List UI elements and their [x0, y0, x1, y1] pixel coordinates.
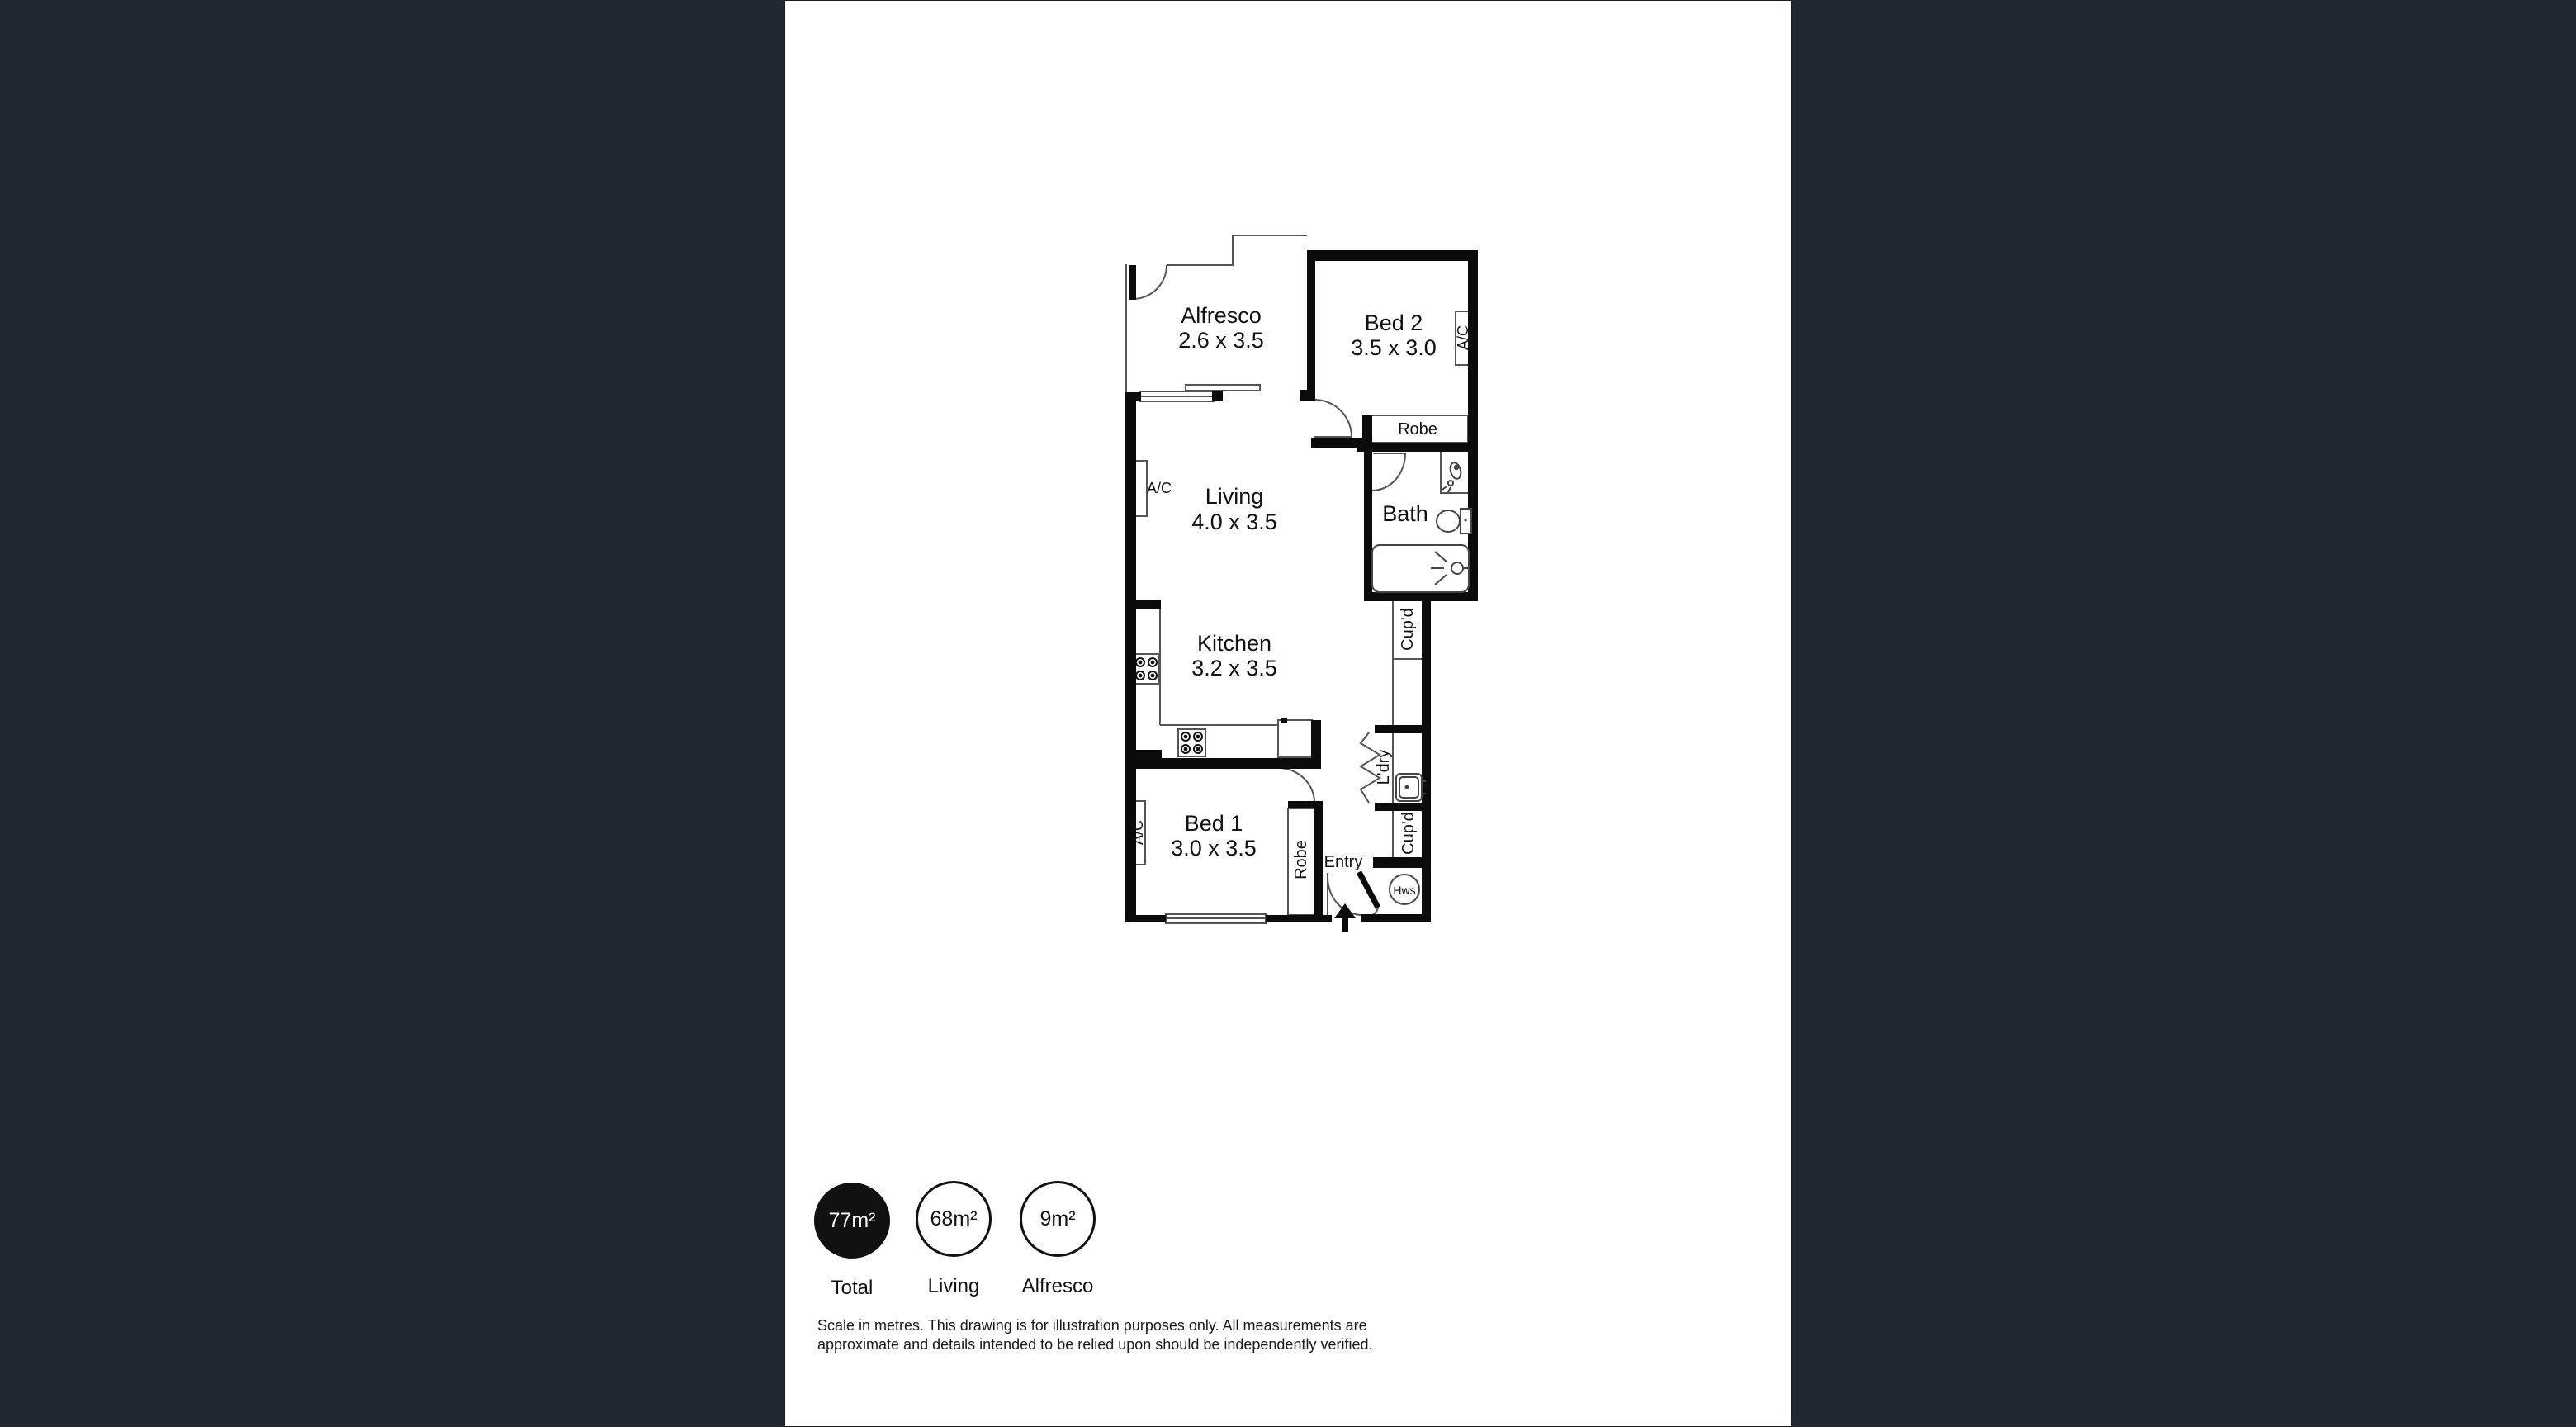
wall-segment — [1125, 758, 1321, 769]
room-label-living: Living — [1205, 484, 1264, 509]
shower-screen — [1441, 451, 1468, 493]
wall-segment — [1281, 718, 1287, 723]
entry-arrow-icon — [1334, 903, 1356, 932]
wall-segment — [1375, 725, 1426, 733]
wall-segment — [1422, 592, 1431, 922]
bath-door-arc — [1372, 453, 1405, 491]
stat-circle-living: 68m² Living — [904, 1181, 1003, 1298]
bed2-ac-label: A/C — [1455, 325, 1471, 350]
wall-segment — [1300, 390, 1315, 401]
room-label-bed2: Bed 2 — [1365, 311, 1423, 335]
cupd-upper-label: Cup'd — [1399, 608, 1417, 651]
stat-caption-alfresco: Alfresco — [1008, 1275, 1107, 1298]
bed1-robe-label: Robe — [1292, 840, 1310, 879]
stat-value-alfresco: 9m² — [1020, 1181, 1096, 1257]
wall-segment — [1307, 250, 1478, 261]
room-dims-living: 4.0 x 3.5 — [1191, 510, 1277, 534]
wall-segment — [1311, 438, 1365, 448]
bathtub-icon — [1372, 545, 1469, 592]
wall-segment — [1373, 857, 1424, 868]
room-dims-kitchen: 3.2 x 3.5 — [1191, 656, 1277, 680]
stat-value-living: 68m² — [916, 1181, 992, 1257]
wall-segment — [1266, 915, 1332, 922]
alfresco-door-arc — [1133, 265, 1167, 299]
wall-segment — [1375, 803, 1426, 811]
living-ac-label: A/C — [1147, 480, 1172, 496]
entry-door-leaf — [1359, 872, 1378, 908]
wall-segment — [1364, 451, 1372, 601]
shower-icon — [1442, 462, 1462, 492]
bed1-door-arc — [1278, 768, 1314, 803]
room-label-kitchen: Kitchen — [1197, 631, 1271, 656]
entry-label: Entry — [1324, 853, 1363, 871]
room-label-bath: Bath — [1382, 501, 1428, 526]
stat-caption-living: Living — [904, 1275, 1003, 1298]
wall-segment — [1314, 801, 1323, 922]
stat-circle-alfresco: 9m² Alfresco — [1008, 1181, 1107, 1298]
room-label-bed1: Bed 1 — [1185, 811, 1243, 836]
wall-segment — [1134, 600, 1161, 609]
room-dims-bed2: 3.5 x 3.0 — [1351, 335, 1437, 360]
wall-segment — [1129, 265, 1136, 300]
cupd-lower-label: Cup'd — [1399, 812, 1418, 855]
floorplan-drawing: Alfresco 2.6 x 3.5 Bed 2 3.5 x 3.0 Livin… — [0, 0, 2576, 1427]
stat-caption-total: Total — [803, 1277, 902, 1300]
toilet-icon — [1437, 509, 1471, 533]
laundry-tub-icon — [1396, 774, 1426, 801]
room-dims-alfresco: 2.6 x 3.5 — [1178, 328, 1264, 353]
kitchen-sink-box — [1278, 720, 1312, 757]
wall-segment — [1311, 720, 1321, 768]
ldry-label: L'dry — [1375, 750, 1393, 785]
wall-segment — [1125, 915, 1166, 922]
stat-circle-total: 77m² Total — [803, 1183, 902, 1300]
room-dims-bed1: 3.0 x 3.5 — [1171, 836, 1257, 860]
hws-label: Hws — [1393, 884, 1415, 897]
wall-segment — [1212, 391, 1223, 401]
alfresco-top-outline — [1167, 235, 1307, 265]
bed1-ac-label: A/C — [1129, 820, 1146, 845]
bed2-door-arc — [1314, 400, 1352, 437]
disclaimer-text: Scale in metres. This drawing is for ill… — [817, 1316, 1412, 1354]
room-label-alfresco: Alfresco — [1181, 303, 1262, 328]
wall-segment — [1361, 914, 1431, 922]
wall-segment — [1307, 250, 1315, 401]
slider-fixed-panel — [1186, 385, 1260, 391]
wall-segment — [1364, 592, 1478, 601]
app-background: Alfresco 2.6 x 3.5 Bed 2 3.5 x 3.0 Livin… — [0, 0, 2576, 1427]
stat-value-total: 77m² — [814, 1183, 890, 1259]
wall-segment — [1468, 250, 1478, 601]
wall-segment — [1357, 443, 1478, 452]
bed2-robe-label: Robe — [1398, 420, 1437, 439]
